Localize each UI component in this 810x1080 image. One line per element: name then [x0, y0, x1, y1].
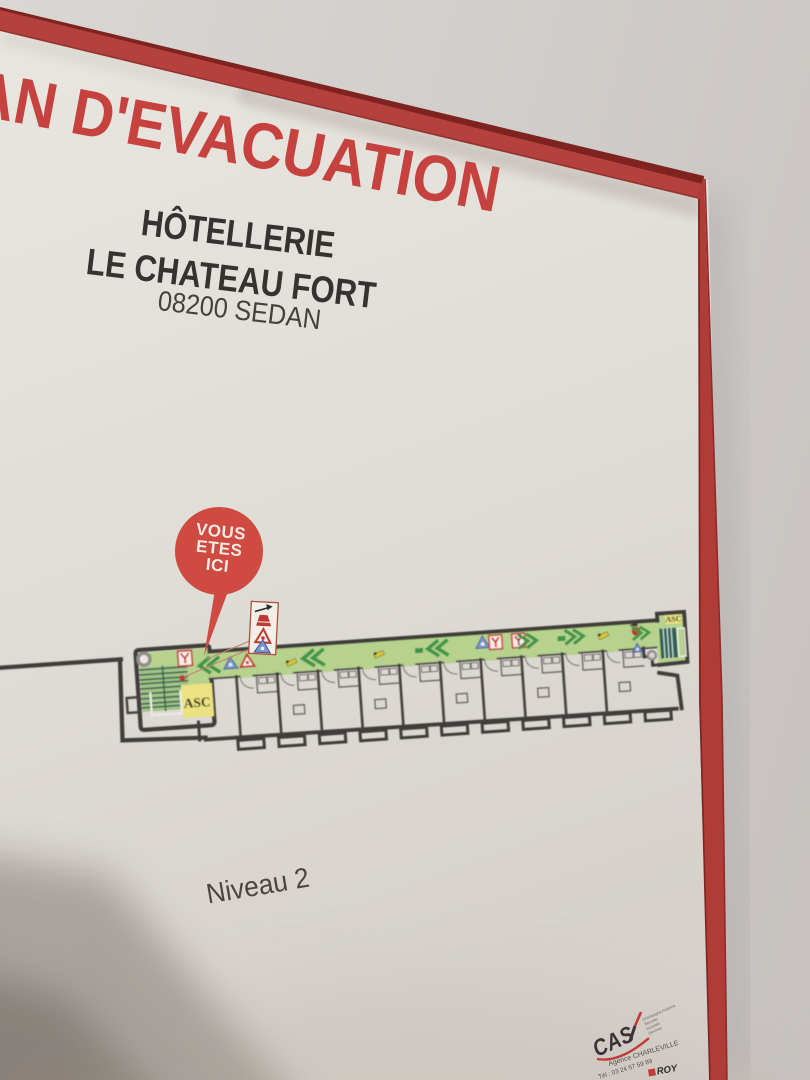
svg-text:ASC: ASC	[665, 614, 682, 624]
svg-text:ASC: ASC	[183, 694, 211, 711]
svg-text:ICI: ICI	[205, 555, 230, 576]
